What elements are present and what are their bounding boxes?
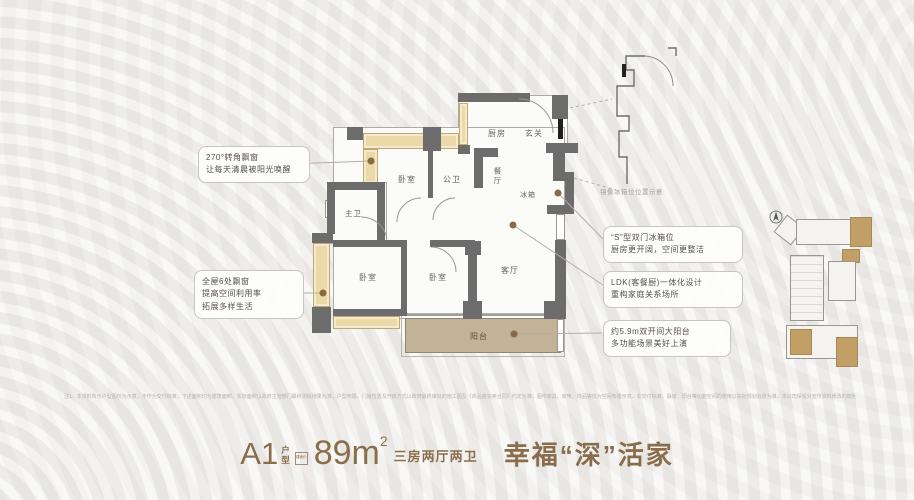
callout-six-bay-windows: 全屋6处飘窗 提高空间利用率 拓展多样生活	[194, 270, 304, 319]
wall-segment	[547, 205, 574, 214]
highlighted-unit	[790, 329, 812, 355]
bay-window	[363, 133, 459, 149]
plan-type-label: 户 型	[281, 446, 290, 466]
wall-segment	[333, 240, 403, 247]
building-outline	[790, 255, 824, 321]
headline: A1 户 型 建面约 89m2 三房两厅两卫 幸福“深”活家	[0, 436, 914, 468]
mirror-note: 镜像冰箱位位置示意	[600, 186, 710, 196]
wall-segment	[423, 127, 441, 151]
room-label-bedroom-third: 卧室	[429, 272, 447, 283]
callout-line: 约5.9m双开间大阳台	[611, 326, 723, 338]
area-number: 89m	[314, 434, 380, 472]
callout-fridge-niche: “S”型双门冰箱位 厨房更开阔，空间更整洁	[603, 226, 743, 263]
room-label-dining: 餐厅	[492, 167, 503, 186]
highlighted-unit	[836, 337, 858, 367]
room-label-living: 客厅	[501, 265, 519, 276]
building-outline	[828, 261, 856, 301]
room-label-bath-public: 公卫	[443, 174, 461, 185]
room-label-fridge: 冰箱	[520, 190, 536, 200]
mirror-fridge-diagram	[617, 48, 676, 184]
plan-code: A1	[240, 440, 278, 468]
wall-segment	[458, 93, 530, 102]
wall-segment	[428, 150, 433, 198]
wall-segment	[312, 233, 333, 243]
room-label-bedroom-master: 卧室	[359, 272, 377, 283]
callout-line: 提高空间利用率	[202, 288, 296, 300]
callout-balcony: 约5.9m双开间大阳台 多功能场景美好上演	[603, 320, 731, 357]
callout-ldk-design: LDK(客餐厨)一体化设计 重构家庭关系场所	[603, 271, 743, 308]
callout-line: 拓展多样生活	[202, 301, 296, 313]
wall-segment	[312, 307, 331, 333]
room-label-kitchen: 厨房	[488, 128, 506, 139]
area-badge: 建面约	[295, 452, 308, 465]
site-key-plan	[762, 203, 880, 378]
disclaimer-text: 注1：本资料所示户型图仅为示意，不作为交付标准；下述面积均为建筑面积，实际面积以…	[64, 393, 856, 400]
highlighted-unit	[850, 217, 872, 247]
room-label-entry: 玄关	[525, 128, 543, 139]
wall-segment	[401, 240, 407, 316]
window	[557, 319, 564, 352]
wall-segment	[474, 150, 483, 188]
callout-line: 重构家庭关系场所	[611, 289, 735, 301]
room-label-bath-master: 主卫	[345, 208, 362, 219]
wall-segment	[377, 188, 385, 240]
wall-segment	[458, 145, 470, 154]
plan-char: 型	[281, 456, 290, 466]
wall-segment	[552, 95, 568, 119]
area-value: 89m2	[314, 436, 388, 468]
wall-segment	[544, 301, 564, 319]
balcony-slider-line	[405, 314, 561, 316]
callout-line: 让每天清晨被阳光唤醒	[206, 164, 302, 176]
bay-window	[363, 149, 378, 184]
bay-window	[459, 103, 468, 145]
wall-segment	[347, 127, 363, 140]
callout-line: “S”型双门冰箱位	[611, 232, 735, 244]
wall-segment	[333, 309, 402, 316]
window	[556, 214, 565, 240]
callout-corner-window: 270°转角飘窗 让每天清晨被阳光唤醒	[198, 146, 310, 183]
wall-segment	[463, 301, 482, 319]
door-leaf	[558, 119, 563, 139]
building-outline	[796, 219, 852, 245]
layout-desc: 三房两厅两卫	[394, 446, 478, 465]
wall-segment	[327, 190, 335, 234]
callout-line: 厨房更开阔，空间更整洁	[611, 244, 735, 256]
bay-window	[333, 316, 400, 329]
poster: 厨房 玄关 卧室 公卫 餐厅 冰箱 主卫 卧室 卧室 客厅 阳台	[0, 0, 914, 500]
callout-line: 多功能场景美好上演	[611, 338, 723, 350]
bay-window	[313, 243, 330, 307]
area-superscript: 2	[380, 433, 388, 449]
room-label-balcony: 阳台	[470, 331, 488, 342]
wall-segment	[430, 240, 475, 247]
callout-line: 270°转角飘窗	[206, 152, 302, 164]
room-label-bedroom-top: 卧室	[398, 174, 416, 185]
callout-line: LDK(客餐厨)一体化设计	[611, 277, 735, 289]
slogan: 幸福“深”活家	[504, 443, 674, 468]
callout-line: 全屋6处飘窗	[202, 276, 296, 288]
